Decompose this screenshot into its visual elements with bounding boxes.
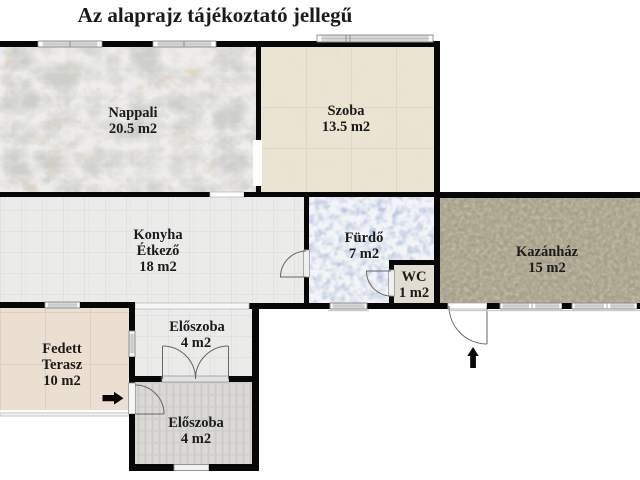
svg-text:1 m2: 1 m2 <box>399 285 429 301</box>
svg-text:15 m2: 15 m2 <box>528 260 565 276</box>
svg-text:Előszoba: Előszoba <box>168 415 224 431</box>
svg-text:WC: WC <box>402 269 427 285</box>
svg-text:Az alaprajz tájékoztató jelleg: Az alaprajz tájékoztató jellegű <box>78 3 353 27</box>
svg-text:20.5 m2: 20.5 m2 <box>109 121 157 137</box>
svg-text:13.5 m2: 13.5 m2 <box>322 119 370 135</box>
svg-text:Kazánház: Kazánház <box>516 244 579 260</box>
svg-text:Nappali: Nappali <box>108 105 157 121</box>
svg-text:4 m2: 4 m2 <box>181 335 211 351</box>
svg-text:10 m2: 10 m2 <box>43 373 80 389</box>
svg-text:18 m2: 18 m2 <box>139 259 176 275</box>
svg-text:Előszoba: Előszoba <box>169 319 225 335</box>
svg-text:Fedett: Fedett <box>42 341 82 357</box>
svg-text:Szoba: Szoba <box>327 103 365 119</box>
svg-text:Terasz: Terasz <box>42 357 83 373</box>
svg-text:Konyha: Konyha <box>133 227 183 243</box>
svg-text:Étkező: Étkező <box>137 242 180 259</box>
svg-text:Fürdő: Fürdő <box>345 230 384 246</box>
svg-text:7 m2: 7 m2 <box>349 246 379 262</box>
svg-text:4 m2: 4 m2 <box>181 431 211 447</box>
